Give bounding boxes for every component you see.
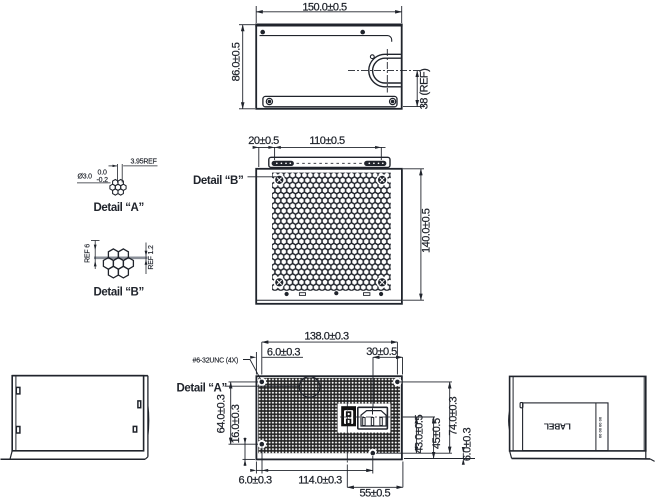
svg-text:Detail “B”: Detail “B”	[193, 175, 243, 187]
svg-text:Detail “B”: Detail “B”	[94, 287, 144, 299]
svg-text:38 (REF): 38 (REF)	[419, 69, 431, 110]
svg-text:140.0±0.5: 140.0±0.5	[421, 208, 433, 253]
svg-text:Detail “A”: Detail “A”	[177, 382, 227, 394]
svg-text:45±0.5: 45±0.5	[431, 418, 443, 449]
svg-text:30±0.5: 30±0.5	[366, 346, 397, 358]
svg-text:Detail “A”: Detail “A”	[94, 202, 144, 214]
svg-text:55±0.5: 55±0.5	[360, 487, 391, 499]
svg-text:00 00 00 00: 00 00 00 00	[598, 416, 603, 438]
svg-text:Ø3.0: Ø3.0	[78, 174, 93, 181]
svg-text:LABEL: LABEL	[544, 422, 571, 432]
svg-text:86.0±0.5: 86.0±0.5	[231, 42, 243, 81]
svg-text:6.0±0.3: 6.0±0.3	[267, 346, 301, 358]
svg-text:3.95REF: 3.95REF	[131, 159, 157, 166]
svg-text:16.0±0.3: 16.0±0.3	[230, 404, 242, 443]
svg-text:REF 1.2: REF 1.2	[148, 245, 155, 270]
svg-text:20±0.5: 20±0.5	[248, 135, 279, 147]
svg-text:6.0±0.3: 6.0±0.3	[239, 475, 273, 487]
svg-text:138.0±0.3: 138.0±0.3	[304, 331, 349, 343]
svg-text:64.0±0.3: 64.0±0.3	[216, 394, 228, 433]
svg-text:REF 6: REF 6	[85, 244, 92, 263]
svg-text:114.0±0.3: 114.0±0.3	[298, 475, 342, 487]
svg-text:110±0.5: 110±0.5	[309, 135, 345, 147]
svg-text:0.0: 0.0	[98, 170, 107, 177]
svg-text:#6-32UNC (4X): #6-32UNC (4X)	[193, 357, 239, 364]
svg-text:43.0±0.5: 43.0±0.5	[414, 415, 426, 454]
